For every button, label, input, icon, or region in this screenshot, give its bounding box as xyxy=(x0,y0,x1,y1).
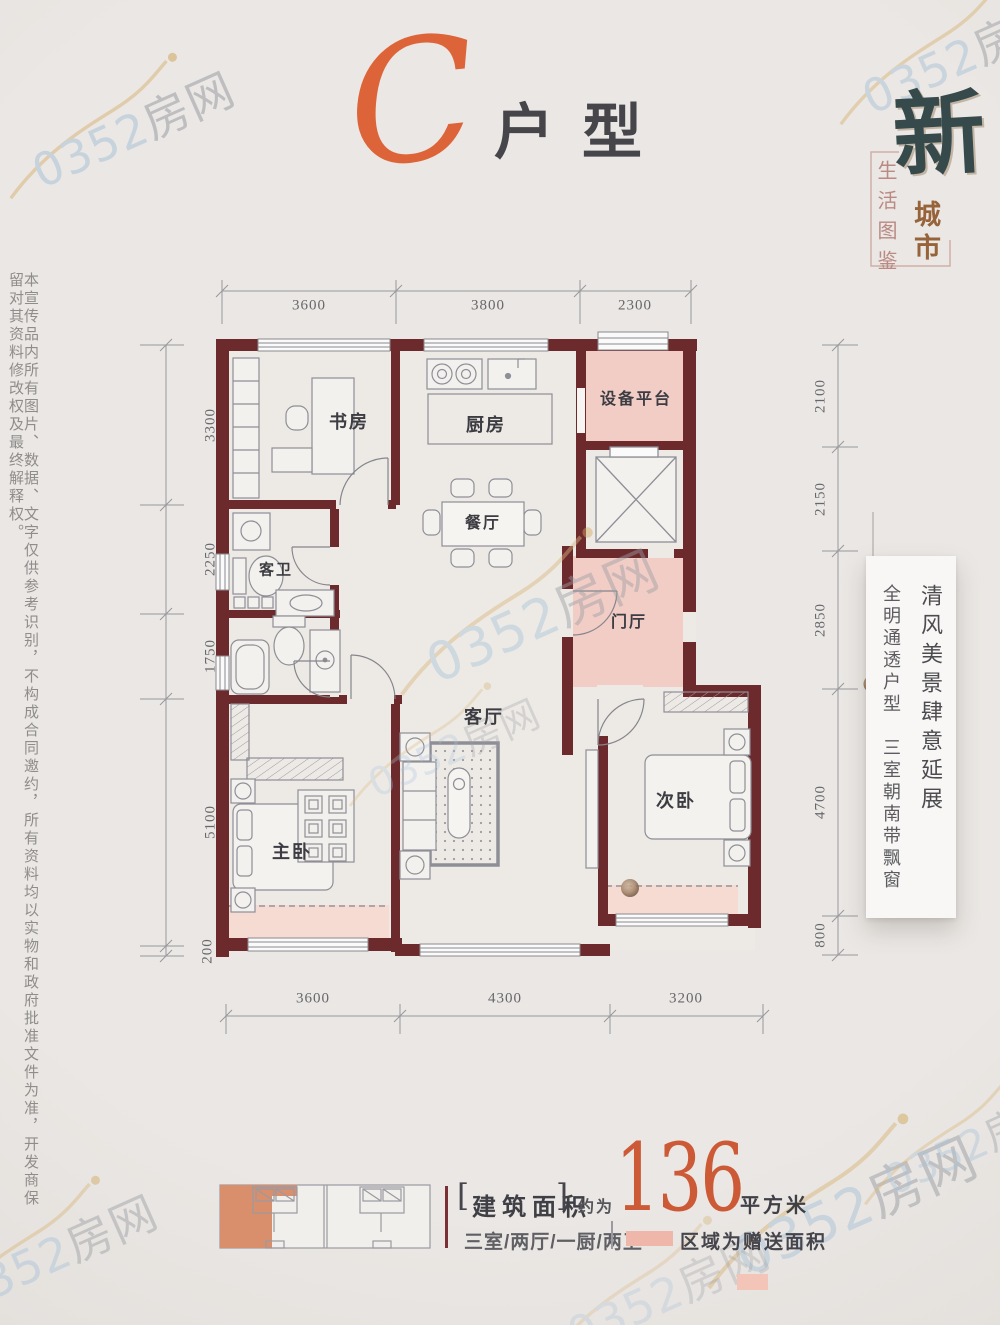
approx-label: 约为 xyxy=(578,1193,614,1217)
selling-points-card: 清风美景肆意延展 全明通透户型 三室朝南带飘窗 xyxy=(866,556,956,918)
dim-right-4: 4700 xyxy=(813,785,830,819)
room-label-living: 客厅 xyxy=(464,703,504,729)
room-label-kitchen: 厨房 xyxy=(466,411,506,437)
brand-tagline: 生活图鉴 xyxy=(872,160,901,280)
layout-summary: 三室/两厅/一厨/两卫 xyxy=(464,1227,643,1254)
area-value: 136 xyxy=(615,1132,743,1226)
dim-top-1: 3600 xyxy=(292,298,326,315)
brand-city: 城市 xyxy=(905,200,944,266)
floorplan-poster: 0352房网 0352房网 0352房网 0352房网 0352房网 0352房… xyxy=(0,0,1000,1325)
dim-right-5: 800 xyxy=(813,922,830,948)
dim-left-2: 2250 xyxy=(203,542,220,576)
keyplan-thumbnail xyxy=(220,1185,430,1248)
dim-left-1: 3300 xyxy=(203,408,220,442)
room-label-foyer: 门厅 xyxy=(611,608,647,632)
dim-left-4: 5100 xyxy=(203,805,220,839)
dim-bottom-2: 4300 xyxy=(488,991,522,1008)
gift-area-swatch xyxy=(626,1231,673,1246)
gift-area-note: 区域为赠送面积 xyxy=(680,1227,827,1254)
area-label: 建筑面积 xyxy=(472,1187,592,1222)
room-label-master: 主卧 xyxy=(272,838,312,864)
dim-bottom-3: 3200 xyxy=(669,991,703,1008)
dim-right-3: 2850 xyxy=(813,603,830,637)
footer-divider-bar xyxy=(445,1186,448,1248)
selling-point-subline: 全明通透户型 三室朝南带飘窗 xyxy=(877,584,903,918)
dim-left-3: 1750 xyxy=(203,639,220,673)
unit-type-label: 户型 xyxy=(494,100,670,166)
dim-top-3: 2300 xyxy=(618,298,652,315)
disclaimer-text: 本宣传品内所有图片、数据、文字仅供参考识别，不构成合同邀约，所有资料均以实物和政… xyxy=(8,272,38,1222)
bracket-right: ] xyxy=(556,1181,568,1212)
room-label-dining: 餐厅 xyxy=(465,509,501,533)
dim-left-5: 200 xyxy=(200,938,217,964)
room-label-study: 书房 xyxy=(329,408,369,434)
area-unit: 平方米 xyxy=(740,1189,809,1218)
room-label-guest-bath: 客卫 xyxy=(259,559,293,580)
selling-point-headline: 清风美景肆意延展 xyxy=(913,584,945,918)
dim-bottom-1: 3600 xyxy=(296,991,330,1008)
footer-separator xyxy=(611,1221,613,1249)
room-label-equipment: 设备平台 xyxy=(600,385,672,409)
dim-right-1: 2100 xyxy=(813,379,830,413)
brand-character: 新 xyxy=(891,86,988,183)
floorplan-drawing xyxy=(0,0,1000,1325)
elevator-shaft xyxy=(596,447,676,542)
gift-area-mark xyxy=(737,1274,768,1290)
unit-type-letter: C xyxy=(340,12,485,193)
dim-right-2: 2150 xyxy=(813,482,830,516)
bracket-left: [ xyxy=(457,1181,469,1212)
room-label-second: 次卧 xyxy=(656,787,696,813)
dim-top-2: 3800 xyxy=(471,298,505,315)
